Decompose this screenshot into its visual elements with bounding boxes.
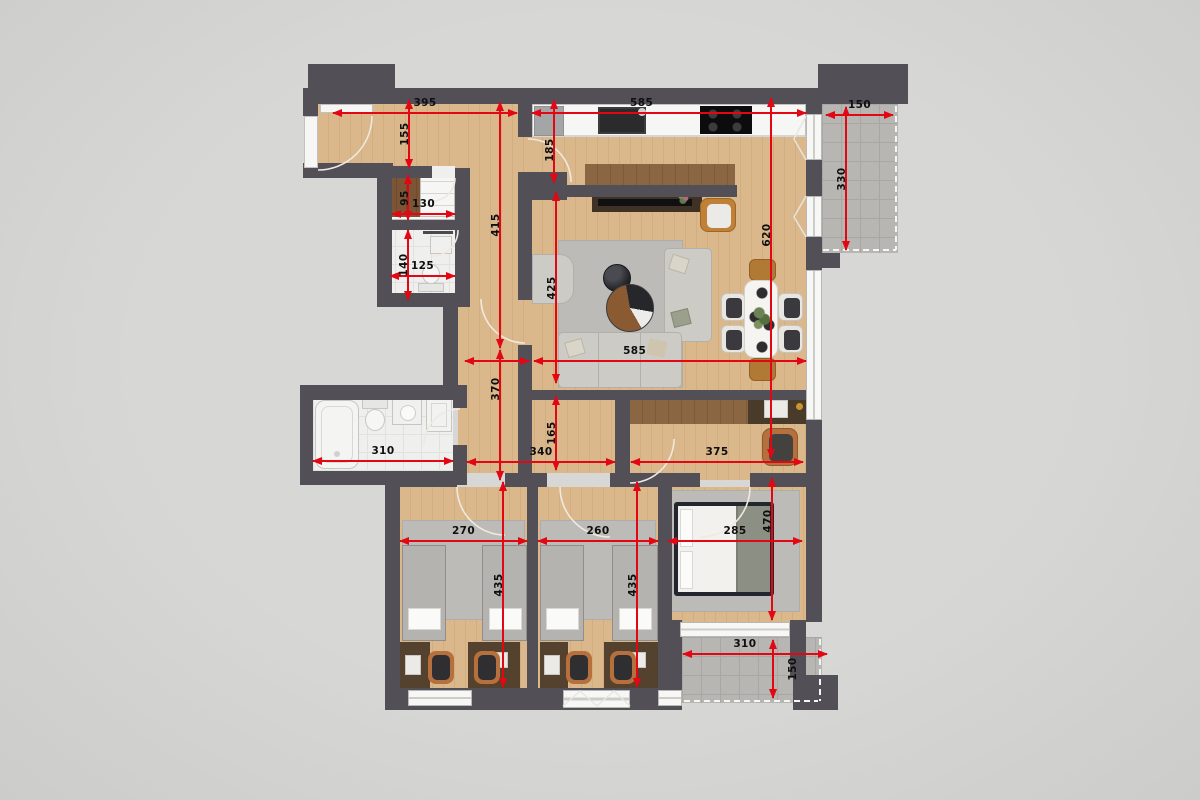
arrowhead (552, 191, 560, 201)
dimension-95: 95 (407, 175, 409, 220)
dimension-620: 620 (770, 98, 772, 458)
dimension-130: 130 (392, 213, 455, 215)
dimension-label: 165 (546, 421, 558, 444)
dimension-label: 140 (398, 253, 410, 276)
dimension-label: 155 (399, 122, 411, 145)
casement-window-mark-1 (794, 116, 806, 160)
arrowhead (466, 458, 476, 466)
arrowhead (496, 339, 504, 349)
arrowhead (649, 537, 659, 545)
dimension-tick (465, 360, 529, 362)
dimension-425: 425 (555, 192, 557, 383)
dimension-140: 140 (407, 230, 409, 300)
dimension-395: 395 (333, 112, 517, 114)
casement-window-mark-2 (794, 196, 806, 237)
arrowhead (332, 109, 342, 117)
arrowhead (793, 537, 803, 545)
arrowhead (508, 109, 518, 117)
dimension-585: 585 (532, 112, 806, 114)
arrowhead (399, 537, 409, 545)
arrowhead (496, 101, 504, 111)
arrowhead (842, 106, 850, 116)
arrowhead (464, 357, 474, 365)
dimension-label: 585 (623, 345, 646, 357)
dimension-435: 435 (636, 482, 638, 687)
arrowhead (405, 159, 413, 169)
dimension-label: 310 (733, 638, 756, 650)
arrowhead (768, 477, 776, 487)
arrowhead (769, 689, 777, 699)
living-door-arc (481, 299, 525, 343)
arrowhead (404, 229, 412, 239)
dimension-label: 270 (452, 525, 475, 537)
dimension-label: 150 (848, 99, 871, 111)
dimension-185: 185 (553, 100, 555, 183)
arrowhead (552, 395, 560, 405)
dimension-label: 435 (493, 573, 505, 596)
dimension-375: 375 (631, 461, 803, 463)
arrowhead (404, 174, 412, 184)
dimension-label: 125 (411, 260, 434, 272)
arrowhead (552, 374, 560, 384)
dimension-585: 585 (534, 360, 806, 362)
dimension-label: 375 (705, 446, 728, 458)
dimension-415: 415 (499, 102, 501, 348)
dimension-label: 130 (412, 198, 435, 210)
arrowhead (633, 678, 641, 688)
arrowhead (537, 537, 547, 545)
arrowhead (767, 97, 775, 107)
arrowhead (769, 639, 777, 649)
dimension-label: 415 (490, 213, 502, 236)
french-door-mark (563, 691, 630, 706)
arrowhead (606, 458, 616, 466)
arrowhead (496, 349, 504, 359)
bathroom-door-arc (424, 409, 460, 445)
arrowhead (633, 481, 641, 491)
arrowhead (499, 678, 507, 688)
dimension-label: 185 (544, 138, 556, 161)
dimension-310: 310 (683, 653, 827, 655)
arrowhead (446, 210, 456, 218)
dimension-label: 435 (627, 573, 639, 596)
arrowhead (404, 291, 412, 301)
arrowhead (794, 458, 804, 466)
dimension-label: 425 (546, 276, 558, 299)
dimension-340: 340 (467, 461, 615, 463)
dimension-310: 310 (313, 460, 453, 462)
arrowhead (446, 272, 456, 280)
dimension-label: 260 (586, 525, 609, 537)
dimension-label: 370 (490, 377, 502, 400)
arrowhead (550, 99, 558, 109)
arrowhead (391, 210, 401, 218)
dimension-285: 285 (668, 540, 802, 542)
arrowhead (552, 461, 560, 471)
arrowhead (444, 457, 454, 465)
dimension-label: 150 (787, 657, 799, 680)
arrowhead (842, 241, 850, 251)
dimension-155: 155 (408, 100, 410, 168)
arrowhead (682, 650, 692, 658)
dimension-label: 330 (836, 167, 848, 190)
arrowhead (312, 457, 322, 465)
dimension-label: 340 (529, 446, 552, 458)
arrowhead (825, 111, 835, 119)
arrowhead (496, 471, 504, 481)
storage-door-arc (432, 178, 455, 201)
arrowhead (818, 650, 828, 658)
arrowhead (533, 357, 543, 365)
door-swing-symbols (0, 0, 1200, 800)
arrowhead (550, 174, 558, 184)
arrowhead (404, 211, 412, 221)
dimension-150: 150 (772, 640, 774, 698)
dimension-470: 470 (771, 478, 773, 620)
dimension-label: 395 (413, 97, 436, 109)
arrowhead (630, 458, 640, 466)
arrowhead (767, 449, 775, 459)
dimension-370: 370 (499, 350, 501, 480)
dimension-435: 435 (502, 482, 504, 687)
dimension-270: 270 (400, 540, 527, 542)
dimension-label: 620 (761, 223, 773, 246)
arrowhead (884, 111, 894, 119)
dimension-150: 150 (826, 114, 893, 116)
balcony-top-railing (823, 106, 896, 250)
wc-door-arc (432, 230, 458, 256)
dimension-label: 585 (630, 97, 653, 109)
dimension-label: 285 (723, 525, 746, 537)
arrowhead (531, 109, 541, 117)
arrowhead (499, 481, 507, 491)
dimension-label: 310 (371, 445, 394, 457)
arrowhead (405, 99, 413, 109)
dimension-260: 260 (538, 540, 658, 542)
floor-plan: 3955851501301255853103403752702602853101… (0, 0, 1200, 800)
dimension-label: 95 (399, 190, 411, 205)
dimension-330: 330 (845, 107, 847, 250)
arrowhead (797, 357, 807, 365)
arrowhead (797, 109, 807, 117)
arrowhead (667, 537, 677, 545)
arrowhead (518, 537, 528, 545)
entry-door-arc (318, 116, 372, 170)
dimension-label: 470 (762, 509, 774, 532)
arrowhead (520, 357, 530, 365)
arrowhead (768, 611, 776, 621)
dimension-165: 165 (555, 396, 557, 470)
